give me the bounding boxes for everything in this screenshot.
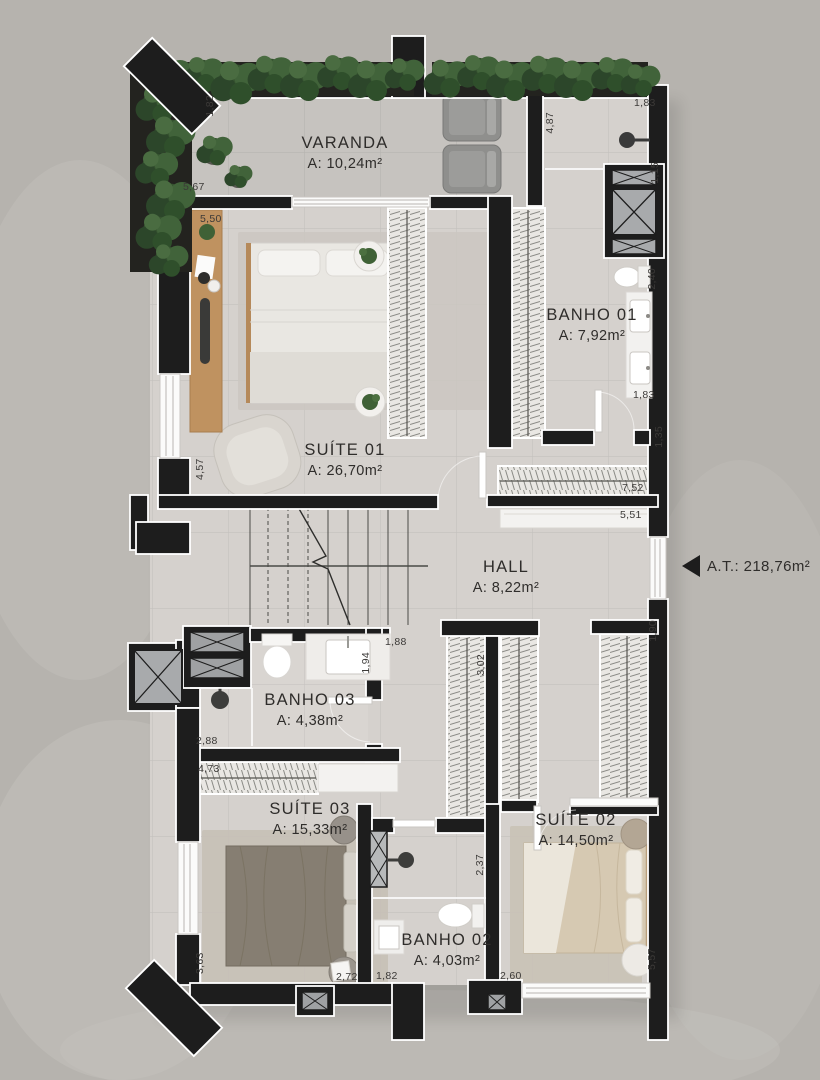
window-suite03-left [178,842,198,934]
bottom-pillar [392,983,424,1040]
dim-label: 2,88 [196,735,218,747]
lounge-chair-2 [443,145,501,193]
suite01-name: SUÍTE 01 [304,440,385,459]
dim-label: 1,94 [360,652,372,674]
dim-label: 3,63 [194,952,206,974]
shower-head-banho03 [211,691,229,709]
closet-3 [600,634,655,802]
suite02-name: SUÍTE 02 [535,810,616,829]
toilet-banho02 [438,903,472,927]
suite01-plant-table-bottom [355,387,385,417]
corridor-closet [512,208,545,438]
dim-label: 2,60 [500,970,522,982]
banho01-name: BANHO 01 [546,306,637,324]
window-suite02-sill [570,798,658,806]
window-suite02-bottom [522,983,650,998]
suite03-closet [192,762,398,794]
dim-label: 1,35 [653,426,665,448]
hall-area: A: 8,22m² [473,580,539,596]
duct-banho03-1 [190,632,244,652]
dim-label: 1,83 [634,97,656,109]
dim-label: 1,88 [385,636,407,648]
dim-label: 1,83 [633,389,655,401]
dim-label: 2,37 [474,854,486,876]
dim-label: 2,72 [336,971,358,983]
dim-label: 1,90 [647,620,659,642]
suite03-bed [226,842,364,970]
window-varanda-suite01 [292,197,430,207]
banho03-area: A: 4,38m² [277,713,343,729]
suite01-sideboard [190,210,222,432]
dim-label: 4,57 [194,458,206,480]
duct-bottom-wall-2 [488,994,506,1010]
dim-label: 7,52 [622,482,644,494]
closet-2 [501,636,538,802]
lounge-chair-1 [443,93,501,141]
floorplan-canvas: VARANDA A: 10,24m² BANHO 01 A: 7,92m² SU… [0,0,820,1080]
window-suite01-left [160,374,180,458]
dim-label: 4,87 [544,112,556,134]
banho02-name: BANHO 02 [401,931,492,949]
elevator-left [134,650,182,704]
shower-head-banho02 [398,852,414,868]
duct-banho03-2 [190,658,244,678]
dim-label: 5,57 [646,948,658,970]
floorplan-svg: VARANDA A: 10,24m² BANHO 01 A: 7,92m² SU… [0,0,820,1080]
dim-label: 3,02 [475,654,487,676]
suite01-area: A: 26,70m² [308,463,383,479]
toilet-banho01 [614,267,640,287]
dim-label: 2,40 [646,268,658,290]
banho02-area: A: 4,03m² [414,953,480,969]
dim-label: 5,67 [183,181,205,193]
shaft-door-banho02 [370,831,387,887]
banho01-area: A: 7,92m² [559,328,625,344]
dim-label: 1,82 [204,95,216,117]
suite01-closet [388,208,426,438]
door-banho02 [393,820,435,827]
suite02-area: A: 14,50m² [539,833,614,849]
suite02-bed [524,841,648,955]
varanda-name: VARANDA [302,134,389,152]
dim-label: 5,51 [620,509,642,521]
dim-label: 4,73 [198,763,220,775]
varanda-area: A: 10,24m² [308,156,383,172]
dim-label: 1,82 [376,970,398,982]
dim-label: 1,15 [649,162,661,184]
window-hall-right [650,537,666,599]
duct-bottom-wall [302,992,328,1010]
suite03-name: SUÍTE 03 [269,799,350,818]
banho03-name: BANHO 03 [264,691,355,709]
suite03-area: A: 15,33m² [273,822,348,838]
hall-name: HALL [483,558,529,576]
toilet-banho03 [263,646,291,678]
suite01-plant-table-top [354,241,384,271]
shower-head-banho01 [619,132,635,148]
total-area-label: A.T.: 218,76m² [707,558,810,575]
suite02-pouf-top [621,819,651,849]
dim-label: 5,50 [200,213,222,225]
